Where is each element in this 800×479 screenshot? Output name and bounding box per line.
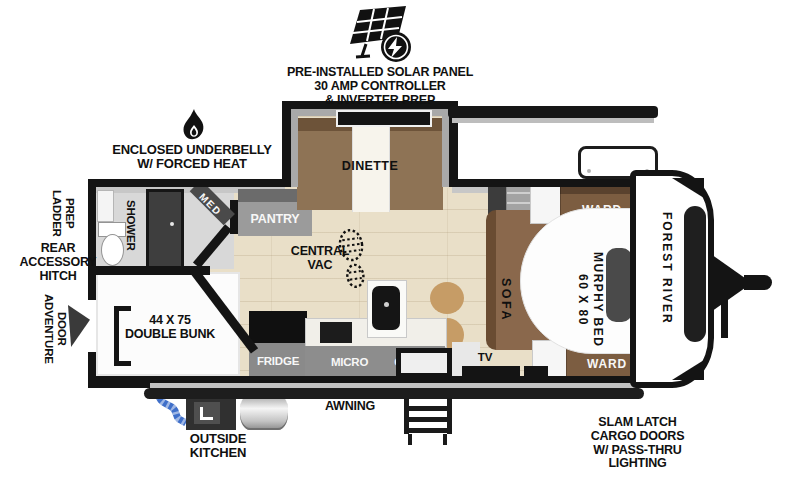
pantry-label: PANTRY <box>251 212 300 226</box>
adventure-door-opening <box>88 300 96 352</box>
slideout-lining-left <box>291 109 298 187</box>
dinette-label: DINETTE <box>320 160 420 174</box>
shower-door-handle <box>170 222 174 226</box>
griddle-handle <box>200 407 213 420</box>
murphy-bed-line-1: 60 X 80 <box>576 274 589 326</box>
wall-top-right <box>452 179 642 187</box>
cargo-line-4: LIGHTING <box>575 457 700 471</box>
rear-accessory-hitch-callout: REAR ACCESSORY HITCH <box>8 242 108 283</box>
outside-kitchen-griddle <box>186 398 236 430</box>
underbelly-callout: ENCLOSED UNDERBELLY W/ FORCED HEAT <box>92 143 292 172</box>
wall-top-left <box>88 179 283 187</box>
brand-label: FOREST RIVER <box>660 212 673 325</box>
fridge-top <box>249 311 307 343</box>
hitch-coupler <box>744 275 772 290</box>
micro-label: MICRO <box>331 356 368 369</box>
ladder-prep-line-1: LADDER <box>50 190 63 237</box>
adventure-door-line-2: DOOR <box>56 312 69 346</box>
murphy-bed-line-2: MURPHY BED <box>591 252 604 347</box>
rear-hitch-line-2: ACCESSORY <box>8 256 108 270</box>
solar-line-1: PRE-INSTALLED SOLAR PANEL <box>280 66 480 80</box>
cargo-doors-callout: SLAM LATCH CARGO DOORS W/ PASS-THRU LIGH… <box>575 416 700 471</box>
shower-label: SHOWER <box>124 200 137 251</box>
entry-steps-icon <box>402 398 454 446</box>
window-strip-2 <box>524 366 548 378</box>
adventure-door-arrow-icon <box>68 305 90 347</box>
window-strip-1 <box>462 366 520 378</box>
adventure-door-line-1: ADVENTURE <box>42 294 55 364</box>
solar-line-2: 30 AMP CONTROLLER <box>280 80 480 94</box>
slideout-lining-right <box>442 109 449 187</box>
cargo-door-latch-left <box>587 169 591 173</box>
floorplan-canvas: PRE-INSTALLED SOLAR PANEL 30 AMP CONTROL… <box>0 0 800 479</box>
cargo-line-1: SLAM LATCH <box>575 416 700 430</box>
awning-label: AWNING <box>300 400 400 414</box>
shower-door <box>146 189 184 271</box>
solar-line-3: & INVERTER PREP <box>280 94 480 108</box>
awning-roller <box>144 388 644 399</box>
sink-faucet <box>384 302 389 307</box>
bunk-door-frame <box>114 306 131 366</box>
ladder-prep-line-2: PREP <box>64 198 77 229</box>
sofa-label: SOFA <box>498 278 512 322</box>
wall-left <box>88 179 96 388</box>
solar-callout: PRE-INSTALLED SOLAR PANEL 30 AMP CONTROL… <box>280 66 480 107</box>
rear-hitch-line-3: HITCH <box>8 270 108 284</box>
cargo-line-3: W/ PASS-THRU <box>575 444 700 458</box>
underbelly-line-1: ENCLOSED UNDERBELLY <box>92 143 292 157</box>
bed-pillow <box>606 248 632 322</box>
ladder-prep-callout: LADDER PREP <box>50 183 76 243</box>
solar-panel-icon <box>336 4 420 66</box>
outside-kitchen-tank <box>240 394 288 430</box>
cargo-line-2: CARGO DOORS <box>575 430 700 444</box>
outside-kitchen-callout: OUTSIDE KITCHEN <box>168 432 268 461</box>
stool-top <box>430 282 464 314</box>
dinette-window <box>336 110 432 127</box>
rear-hitch-line-1: REAR <box>8 242 108 256</box>
outside-kitchen-line-1: OUTSIDE <box>168 432 268 446</box>
kitchen-sink <box>372 286 400 330</box>
flame-icon <box>181 108 207 142</box>
cooktop <box>320 322 352 343</box>
fridge-label: FRIDGE <box>257 355 299 367</box>
offdoor-side-rail <box>448 106 658 118</box>
underbelly-line-2: W/ FORCED HEAT <box>92 157 292 171</box>
adventure-door-callout: ADVENTURE DOOR <box>42 288 68 370</box>
tongue-jack <box>721 300 728 338</box>
entry-landing <box>396 348 452 378</box>
offdoor-side-rail-shadow <box>452 118 654 123</box>
tv-label: TV <box>470 351 500 364</box>
ward-bottom-label: WARD <box>587 357 627 371</box>
bathroom-vanity <box>97 190 114 222</box>
outside-kitchen-line-2: KITCHEN <box>168 446 268 460</box>
front-cap-accent-pill <box>684 206 706 342</box>
murphy-bed-label: 60 X 80 MURPHY BED <box>576 252 604 348</box>
